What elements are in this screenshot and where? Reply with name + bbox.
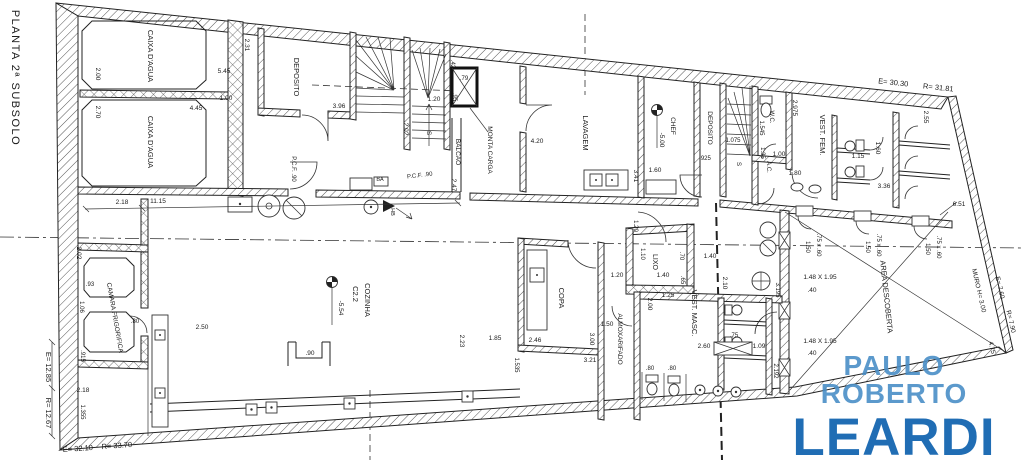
dim-label: .75 x .60 <box>935 235 941 259</box>
level-value-chef: -5.00 <box>658 133 665 148</box>
dim-label: 2.31 <box>243 39 250 52</box>
dim-label: 1.85 <box>489 335 502 342</box>
dim-label: .65 <box>679 276 685 285</box>
dim-label: 3.195 <box>774 282 780 298</box>
door-label: P.C.F. .90 <box>407 171 434 180</box>
dim-label: 1.355 <box>79 404 85 420</box>
floor-plan-page: PLANTA 2ª SUBSOLOCAIXA D'AGUACAIXA D'AGU… <box>0 0 1024 460</box>
survey-label: E= 30.30 <box>878 76 909 88</box>
dim-label: 1.25 <box>662 292 675 299</box>
dim-label: 1.48 X 1.95 <box>803 338 837 345</box>
dim-label: .90 <box>305 350 314 357</box>
room-label-wc: W.C. <box>768 111 774 124</box>
survey-label: E= 32.10 <box>62 443 93 454</box>
dim-label: 1.50 <box>601 321 614 328</box>
dim-label: 1.20 <box>611 272 624 279</box>
dim-label: 2.975 <box>791 100 798 117</box>
dim-label: 1.40 <box>657 272 670 279</box>
right-muro-wall <box>948 96 1013 353</box>
dim-label: 1.40 <box>704 253 717 260</box>
room-label-ac: A.C. <box>765 161 771 173</box>
dim-label: 2.23 <box>458 335 465 348</box>
dim-label: 5.45 <box>218 68 231 75</box>
dim-label: 3.96 <box>333 103 346 110</box>
dim-label: .70 <box>678 252 684 261</box>
room-label-vest-fem: VEST. FEM. <box>818 115 827 156</box>
dim-label: 1.80 <box>789 170 802 177</box>
dim-label: 2.60 <box>698 343 711 350</box>
room-label-area-descoberta: AREA DESCOBERTA <box>878 260 895 334</box>
dim-label: .75 x .60 <box>815 233 821 257</box>
fixture-label: HB <box>389 208 395 216</box>
dim-label: 4.45 <box>190 105 203 112</box>
survey-label: R= 12.67 <box>44 398 53 429</box>
dim-label: .79 <box>460 76 469 82</box>
dim-label: 2.47 <box>450 179 457 192</box>
level-label-chef: CHEF <box>669 117 676 135</box>
survey-label: R= 31.81 <box>923 81 954 93</box>
dim-label: .95 <box>451 93 457 102</box>
dim-label: 4.20 <box>531 138 544 145</box>
dim-label: 1.00 <box>220 95 233 102</box>
dim-label: 2.00 <box>646 298 653 311</box>
dim-label: 2.18 <box>116 199 129 206</box>
dim-label: 1.20 <box>428 96 441 103</box>
dim-label: 1.545 <box>758 120 764 136</box>
dim-label: 3.21 <box>584 357 597 364</box>
dim-label: .93 <box>86 282 95 288</box>
dim-label: 1.60 <box>649 167 662 174</box>
stair-label: S <box>735 162 741 166</box>
dim-label: 2.18 <box>77 387 90 394</box>
dim-label: 6.51 <box>953 201 966 208</box>
watermark-name-top: PAULO ROBERTO <box>768 352 1020 408</box>
dim-label: 3.41 <box>632 170 639 183</box>
dim-label: .75 x .60 <box>875 233 881 257</box>
survey-label: E= 12.85 <box>44 352 53 382</box>
room-label-lixo: LIXO <box>651 254 658 271</box>
dim-label: 1.15 <box>852 153 865 160</box>
stair-right <box>727 86 751 156</box>
room-label-camara-frigorifica: CAMARA FRIGORIFICA <box>105 282 124 354</box>
watermark-name-bottom: LEARDI <box>768 411 1020 460</box>
dim-label: 1.35 <box>759 147 765 159</box>
dim-label: .75 <box>730 333 739 339</box>
dim-label: 11.15 <box>150 198 166 205</box>
dim-label: 2.10 <box>721 277 728 290</box>
door-label: P.C.F. .90 <box>290 156 296 182</box>
room-label-deposito-2: DEPOSITO <box>706 111 713 144</box>
dim-label: .80 <box>668 366 677 372</box>
dim-label: 3.36 <box>878 183 891 190</box>
dim-label: 1.50 <box>804 241 810 253</box>
dim-label: 1.00 <box>773 151 786 158</box>
stair-label: S <box>425 131 432 136</box>
dim-label: 1.60 <box>874 142 881 155</box>
dim-label: 2.46 <box>529 337 542 344</box>
room-label-cozinha-code: C2.2 <box>351 286 360 302</box>
fixture-label: BA <box>376 177 384 183</box>
wall-label-muro: MURO H= 3.00 <box>970 268 987 313</box>
room-label-almoxarifado: ALMOXARIFADO <box>616 313 623 364</box>
dim-label: 1.50 <box>864 241 870 253</box>
dim-label: 2.02 <box>75 247 82 260</box>
dim-label: 2.55 <box>922 111 929 124</box>
room-label-vest-masc: VEST. MASC. <box>690 290 699 337</box>
dim-label: 1.06 <box>78 301 84 313</box>
dim-label: 1.50 <box>924 243 930 255</box>
dim-label: 1.10 <box>639 248 645 260</box>
level-markers <box>327 105 663 326</box>
dim-label: .80 <box>646 366 655 372</box>
dim-label: .42 <box>449 60 455 69</box>
dim-label: 1.48 X 1.95 <box>803 274 837 281</box>
dim-label: 1.20 <box>632 220 638 232</box>
room-label-caixa-dagua-2: CAIXA D'AGUA <box>146 116 155 168</box>
dim-label: 2.00 <box>94 68 101 81</box>
room-label-deposito: DEPOSITO <box>292 58 301 97</box>
room-label-balcao: BALCAO <box>454 139 461 165</box>
room-label-caixa-dagua-1: CAIXA D'AGUA <box>146 30 155 82</box>
dim-label: 2.50 <box>196 324 209 331</box>
dim-label: .80 <box>131 319 140 325</box>
dim-label: .925 <box>699 156 711 162</box>
dim-label: 3.00 <box>588 333 595 346</box>
room-label-copa: COPA <box>557 288 566 309</box>
survey-label: R= 33.70 <box>101 440 132 451</box>
room-label-lavagem: LAVAGEM <box>581 115 590 150</box>
dim-label: 2.02 <box>402 123 409 136</box>
dim-label: 1.09 <box>753 343 766 350</box>
dim-label: 1.075 <box>725 138 741 144</box>
dim-label: 2.70 <box>94 106 101 119</box>
left-wall <box>56 3 78 450</box>
dim-label: .915 <box>79 350 85 362</box>
dim-label: .40 <box>807 287 816 294</box>
level-value-cozinha: -5.54 <box>337 301 344 316</box>
level-marker-cozinha <box>327 277 338 326</box>
plan-title: PLANTA 2ª SUBSOLO <box>9 10 21 146</box>
room-label-monta-carga: MONTA CARGA <box>486 126 493 174</box>
room-label-cozinha: COZINHA <box>363 283 372 317</box>
watermark: PAULO ROBERTO LEARDI <box>768 352 1020 460</box>
dim-label: 1.535 <box>513 357 519 373</box>
